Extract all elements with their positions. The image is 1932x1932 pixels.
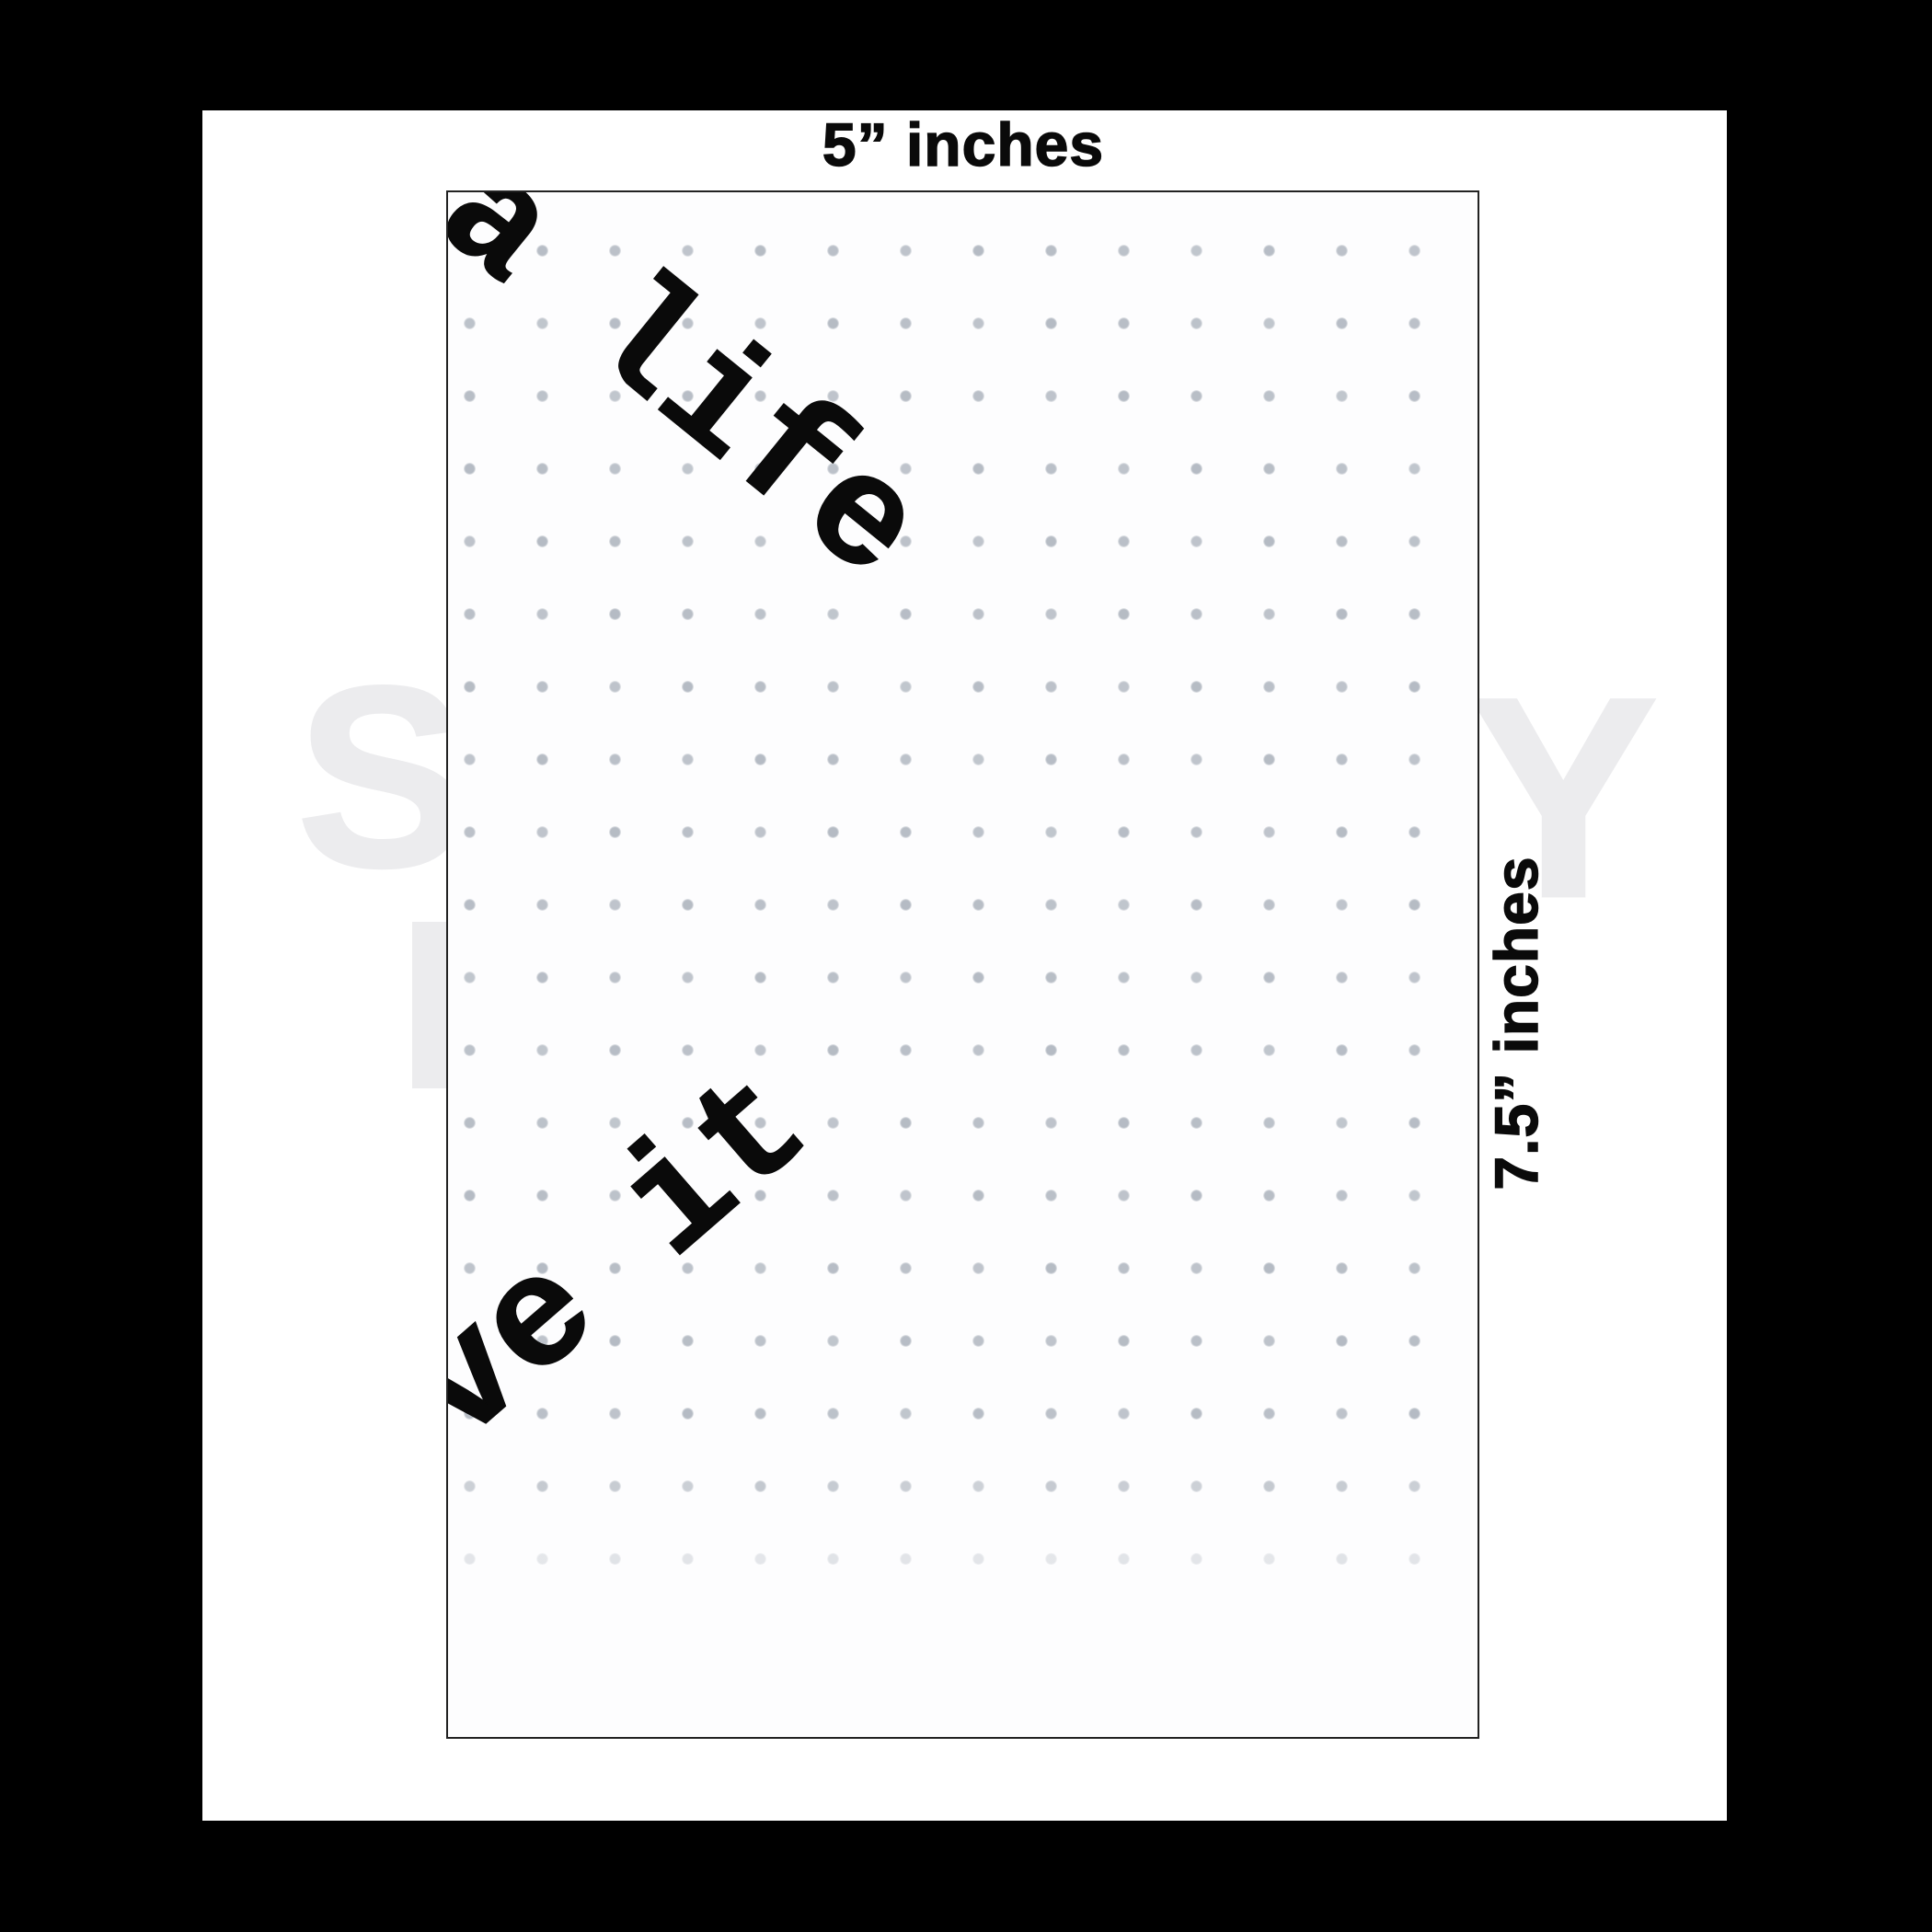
grid-dot (827, 899, 839, 911)
grid-dot (682, 1480, 694, 1492)
grid-dot (1409, 245, 1420, 257)
grid-dot (972, 1335, 984, 1347)
grid-dot (1045, 1117, 1057, 1129)
grid-dot (1118, 1408, 1130, 1420)
grid-dot (972, 535, 984, 547)
grid-dot (1409, 1117, 1420, 1129)
grid-dot (1190, 972, 1202, 983)
grid-dot (609, 1117, 621, 1129)
grid-dot (609, 899, 621, 911)
grid-dot (1190, 1480, 1202, 1492)
grid-dot (754, 826, 766, 838)
grid-dot (1409, 1553, 1420, 1565)
grid-dot (754, 899, 766, 911)
grid-dot (536, 390, 548, 402)
grid-dot (827, 681, 839, 693)
grid-dot (1190, 245, 1202, 257)
grid-dot (1263, 535, 1275, 547)
grid-dot (1118, 1335, 1130, 1347)
grid-dot (972, 826, 984, 838)
grid-dot (1118, 972, 1130, 983)
grid-dot (754, 1408, 766, 1420)
grid-dot (1336, 1408, 1348, 1420)
grid-dot (900, 753, 912, 765)
grid-dot (1118, 317, 1130, 329)
grid-dot (972, 1117, 984, 1129)
grid-dot (827, 1408, 839, 1420)
grid-dot (1190, 1553, 1202, 1565)
grid-dot (754, 608, 766, 620)
grid-dot (1118, 1553, 1130, 1565)
grid-dot (1045, 1553, 1057, 1565)
grid-dot (1263, 1262, 1275, 1274)
grid-dot (609, 608, 621, 620)
grid-dot (536, 826, 548, 838)
grid-dot (609, 1044, 621, 1056)
grid-dot (1336, 608, 1348, 620)
grid-dot (682, 899, 694, 911)
grid-dot (1190, 463, 1202, 475)
grid-dot (1118, 1190, 1130, 1202)
grid-dot (972, 390, 984, 402)
grid-dot (1190, 826, 1202, 838)
grid-dot (1409, 826, 1420, 838)
notepad-sheet: a life ve it (446, 190, 1479, 1739)
grid-dot (1118, 608, 1130, 620)
grid-dot (609, 463, 621, 475)
grid-dot (1336, 899, 1348, 911)
grid-dot (1263, 753, 1275, 765)
grid-dot (1190, 390, 1202, 402)
grid-dot (827, 1044, 839, 1056)
grid-dot (1045, 245, 1057, 257)
grid-dot (1045, 1262, 1057, 1274)
grid-dot (1409, 317, 1420, 329)
grid-dot (1409, 753, 1420, 765)
grid-dot (1045, 972, 1057, 983)
grid-dot (609, 1553, 621, 1565)
grid-dot (900, 245, 912, 257)
grid-dot (754, 753, 766, 765)
grid-dot (972, 972, 984, 983)
grid-dot (1409, 1408, 1420, 1420)
grid-dot (609, 972, 621, 983)
grid-dot (1118, 245, 1130, 257)
image-background: S Y a life ve it 5” inches 7.5” inches (202, 110, 1727, 1821)
grid-dot (1118, 1117, 1130, 1129)
grid-dot (900, 899, 912, 911)
grid-dot (1263, 245, 1275, 257)
height-dimension-label: 7.5” inches (1486, 802, 1550, 1244)
grid-dot (1118, 1044, 1130, 1056)
grid-dot (1409, 972, 1420, 983)
grid-dot (1409, 1480, 1420, 1492)
grid-dot (1409, 608, 1420, 620)
grid-dot (754, 1335, 766, 1347)
grid-dot (827, 826, 839, 838)
grid-dot (1263, 1335, 1275, 1347)
grid-dot (972, 245, 984, 257)
grid-dot (1336, 826, 1348, 838)
grid-dot (464, 1044, 476, 1056)
grid-dot (972, 681, 984, 693)
grid-dot (1409, 681, 1420, 693)
grid-dot (1045, 390, 1057, 402)
grid-dot (972, 1480, 984, 1492)
grid-dot (754, 972, 766, 983)
grid-dot (754, 1262, 766, 1274)
grid-dot (536, 535, 548, 547)
grid-dot (827, 317, 839, 329)
grid-dot (1045, 826, 1057, 838)
grid-dot (1263, 826, 1275, 838)
grid-dot (1263, 681, 1275, 693)
grid-dot (1336, 245, 1348, 257)
grid-dot (900, 1553, 912, 1565)
grid-dot (1118, 390, 1130, 402)
watermark-letter-s: S (296, 649, 468, 906)
grid-dot (1336, 753, 1348, 765)
grid-dot (464, 535, 476, 547)
grid-dot (536, 972, 548, 983)
grid-dot (1190, 899, 1202, 911)
grid-dot (1263, 1044, 1275, 1056)
grid-dot (536, 1480, 548, 1492)
grid-dot (682, 681, 694, 693)
grid-dot (1190, 535, 1202, 547)
grid-dot (1118, 681, 1130, 693)
grid-dot (464, 390, 476, 402)
grid-dot (609, 826, 621, 838)
grid-dot (1336, 1553, 1348, 1565)
grid-dot (1263, 1553, 1275, 1565)
grid-dot (972, 317, 984, 329)
grid-dot (1263, 317, 1275, 329)
grid-dot (464, 608, 476, 620)
grid-dot (464, 753, 476, 765)
width-dimension-label: 5” inches (718, 114, 1209, 175)
grid-dot (1045, 317, 1057, 329)
grid-dot (1336, 1190, 1348, 1202)
grid-dot (1263, 1408, 1275, 1420)
grid-dot (827, 1262, 839, 1274)
grid-dot (1118, 826, 1130, 838)
grid-dot (900, 1117, 912, 1129)
grid-dot (609, 753, 621, 765)
grid-dot (900, 1190, 912, 1202)
grid-dot (827, 1117, 839, 1129)
grid-dot (900, 317, 912, 329)
grid-dot (1409, 1044, 1420, 1056)
grid-dot (536, 1044, 548, 1056)
grid-dot (682, 535, 694, 547)
grid-dot (1336, 1117, 1348, 1129)
grid-dot (1190, 753, 1202, 765)
grid-dot (682, 753, 694, 765)
grid-dot (464, 463, 476, 475)
grid-dot (1263, 390, 1275, 402)
grid-dot (464, 1190, 476, 1202)
grid-dot (464, 899, 476, 911)
grid-dot (900, 390, 912, 402)
grid-dot (1118, 753, 1130, 765)
grid-dot (1118, 463, 1130, 475)
grid-dot (682, 1553, 694, 1565)
grid-dot (1336, 1262, 1348, 1274)
grid-dot (682, 1335, 694, 1347)
grid-dot (900, 608, 912, 620)
grid-dot (464, 972, 476, 983)
grid-dot (609, 1408, 621, 1420)
grid-dot (1336, 1480, 1348, 1492)
grid-dot (536, 463, 548, 475)
grid-dot (536, 681, 548, 693)
grid-dot (1409, 390, 1420, 402)
grid-dot (682, 608, 694, 620)
grid-dot (1045, 608, 1057, 620)
grid-dot (1190, 1117, 1202, 1129)
grid-dot (1045, 681, 1057, 693)
grid-dot (1409, 1335, 1420, 1347)
grid-dot (464, 826, 476, 838)
grid-dot (972, 1190, 984, 1202)
grid-dot (827, 972, 839, 983)
grid-dot (682, 1408, 694, 1420)
grid-dot (754, 1480, 766, 1492)
grid-dot (1336, 390, 1348, 402)
grid-dot (1118, 535, 1130, 547)
grid-dot (1118, 899, 1130, 911)
grid-dot (1190, 681, 1202, 693)
grid-dot (972, 1408, 984, 1420)
grid-dot (827, 245, 839, 257)
grid-dot (972, 899, 984, 911)
grid-dot (682, 1044, 694, 1056)
grid-dot (1190, 317, 1202, 329)
grid-dot (1336, 535, 1348, 547)
grid-dot (1263, 899, 1275, 911)
grid-dot (1409, 1190, 1420, 1202)
grid-dot (1336, 1335, 1348, 1347)
grid-dot (754, 1044, 766, 1056)
grid-dot (1263, 608, 1275, 620)
grid-dot (827, 753, 839, 765)
grid-dot (972, 753, 984, 765)
grid-dot (1045, 753, 1057, 765)
grid-dot (536, 1117, 548, 1129)
grid-dot (972, 1553, 984, 1565)
grid-dot (1045, 1335, 1057, 1347)
grid-dot (1045, 1480, 1057, 1492)
grid-dot (609, 681, 621, 693)
grid-dot (1190, 1190, 1202, 1202)
grid-dot (827, 1480, 839, 1492)
grid-dot (1045, 1044, 1057, 1056)
grid-dot (900, 826, 912, 838)
grid-dot (754, 245, 766, 257)
grid-dot (1263, 972, 1275, 983)
grid-dot (464, 1480, 476, 1492)
grid-dot (827, 1335, 839, 1347)
grid-dot (1336, 972, 1348, 983)
grid-dot (682, 826, 694, 838)
grid-dot (1118, 1480, 1130, 1492)
grid-dot (972, 1262, 984, 1274)
grid-dot (1190, 1335, 1202, 1347)
grid-dot (609, 535, 621, 547)
grid-dot (1045, 535, 1057, 547)
grid-dot (900, 681, 912, 693)
grid-dot (682, 245, 694, 257)
grid-dot (827, 1553, 839, 1565)
grid-dot (972, 1044, 984, 1056)
grid-dot (972, 608, 984, 620)
grid-dot (536, 608, 548, 620)
grid-dot (1263, 1480, 1275, 1492)
grid-dot (464, 681, 476, 693)
grid-dot (1118, 1262, 1130, 1274)
grid-dot (900, 1044, 912, 1056)
grid-dot (754, 1553, 766, 1565)
grid-dot (1190, 1408, 1202, 1420)
grid-dot (1263, 1117, 1275, 1129)
grid-dot (900, 1480, 912, 1492)
grid-dot (1336, 317, 1348, 329)
grid-dot (1336, 681, 1348, 693)
grid-dot (1263, 1190, 1275, 1202)
grid-dot (1045, 1408, 1057, 1420)
grid-dot (1336, 463, 1348, 475)
grid-dot (1190, 1044, 1202, 1056)
grid-dot (1409, 535, 1420, 547)
grid-dot (1336, 1044, 1348, 1056)
grid-dot (464, 1117, 476, 1129)
grid-dot (1409, 1262, 1420, 1274)
grid-dot (972, 463, 984, 475)
grid-dot (1045, 463, 1057, 475)
grid-dot (464, 1553, 476, 1565)
grid-dot (1263, 463, 1275, 475)
grid-dot (754, 681, 766, 693)
grid-dot (1190, 1262, 1202, 1274)
grid-dot (536, 753, 548, 765)
grid-dot (1409, 463, 1420, 475)
grid-dot (682, 972, 694, 983)
grid-dot (1409, 899, 1420, 911)
grid-dot (900, 1335, 912, 1347)
grid-dot (900, 1408, 912, 1420)
grid-dot (900, 972, 912, 983)
grid-dot (827, 1190, 839, 1202)
grid-dot (609, 1480, 621, 1492)
grid-dot (1045, 899, 1057, 911)
grid-dot (1190, 608, 1202, 620)
grid-dot (536, 1553, 548, 1565)
grid-dot (536, 899, 548, 911)
product-image: S Y a life ve it 5” inches 7.5” inches (0, 0, 1932, 1932)
grid-dot (1045, 1190, 1057, 1202)
grid-dot (900, 1262, 912, 1274)
